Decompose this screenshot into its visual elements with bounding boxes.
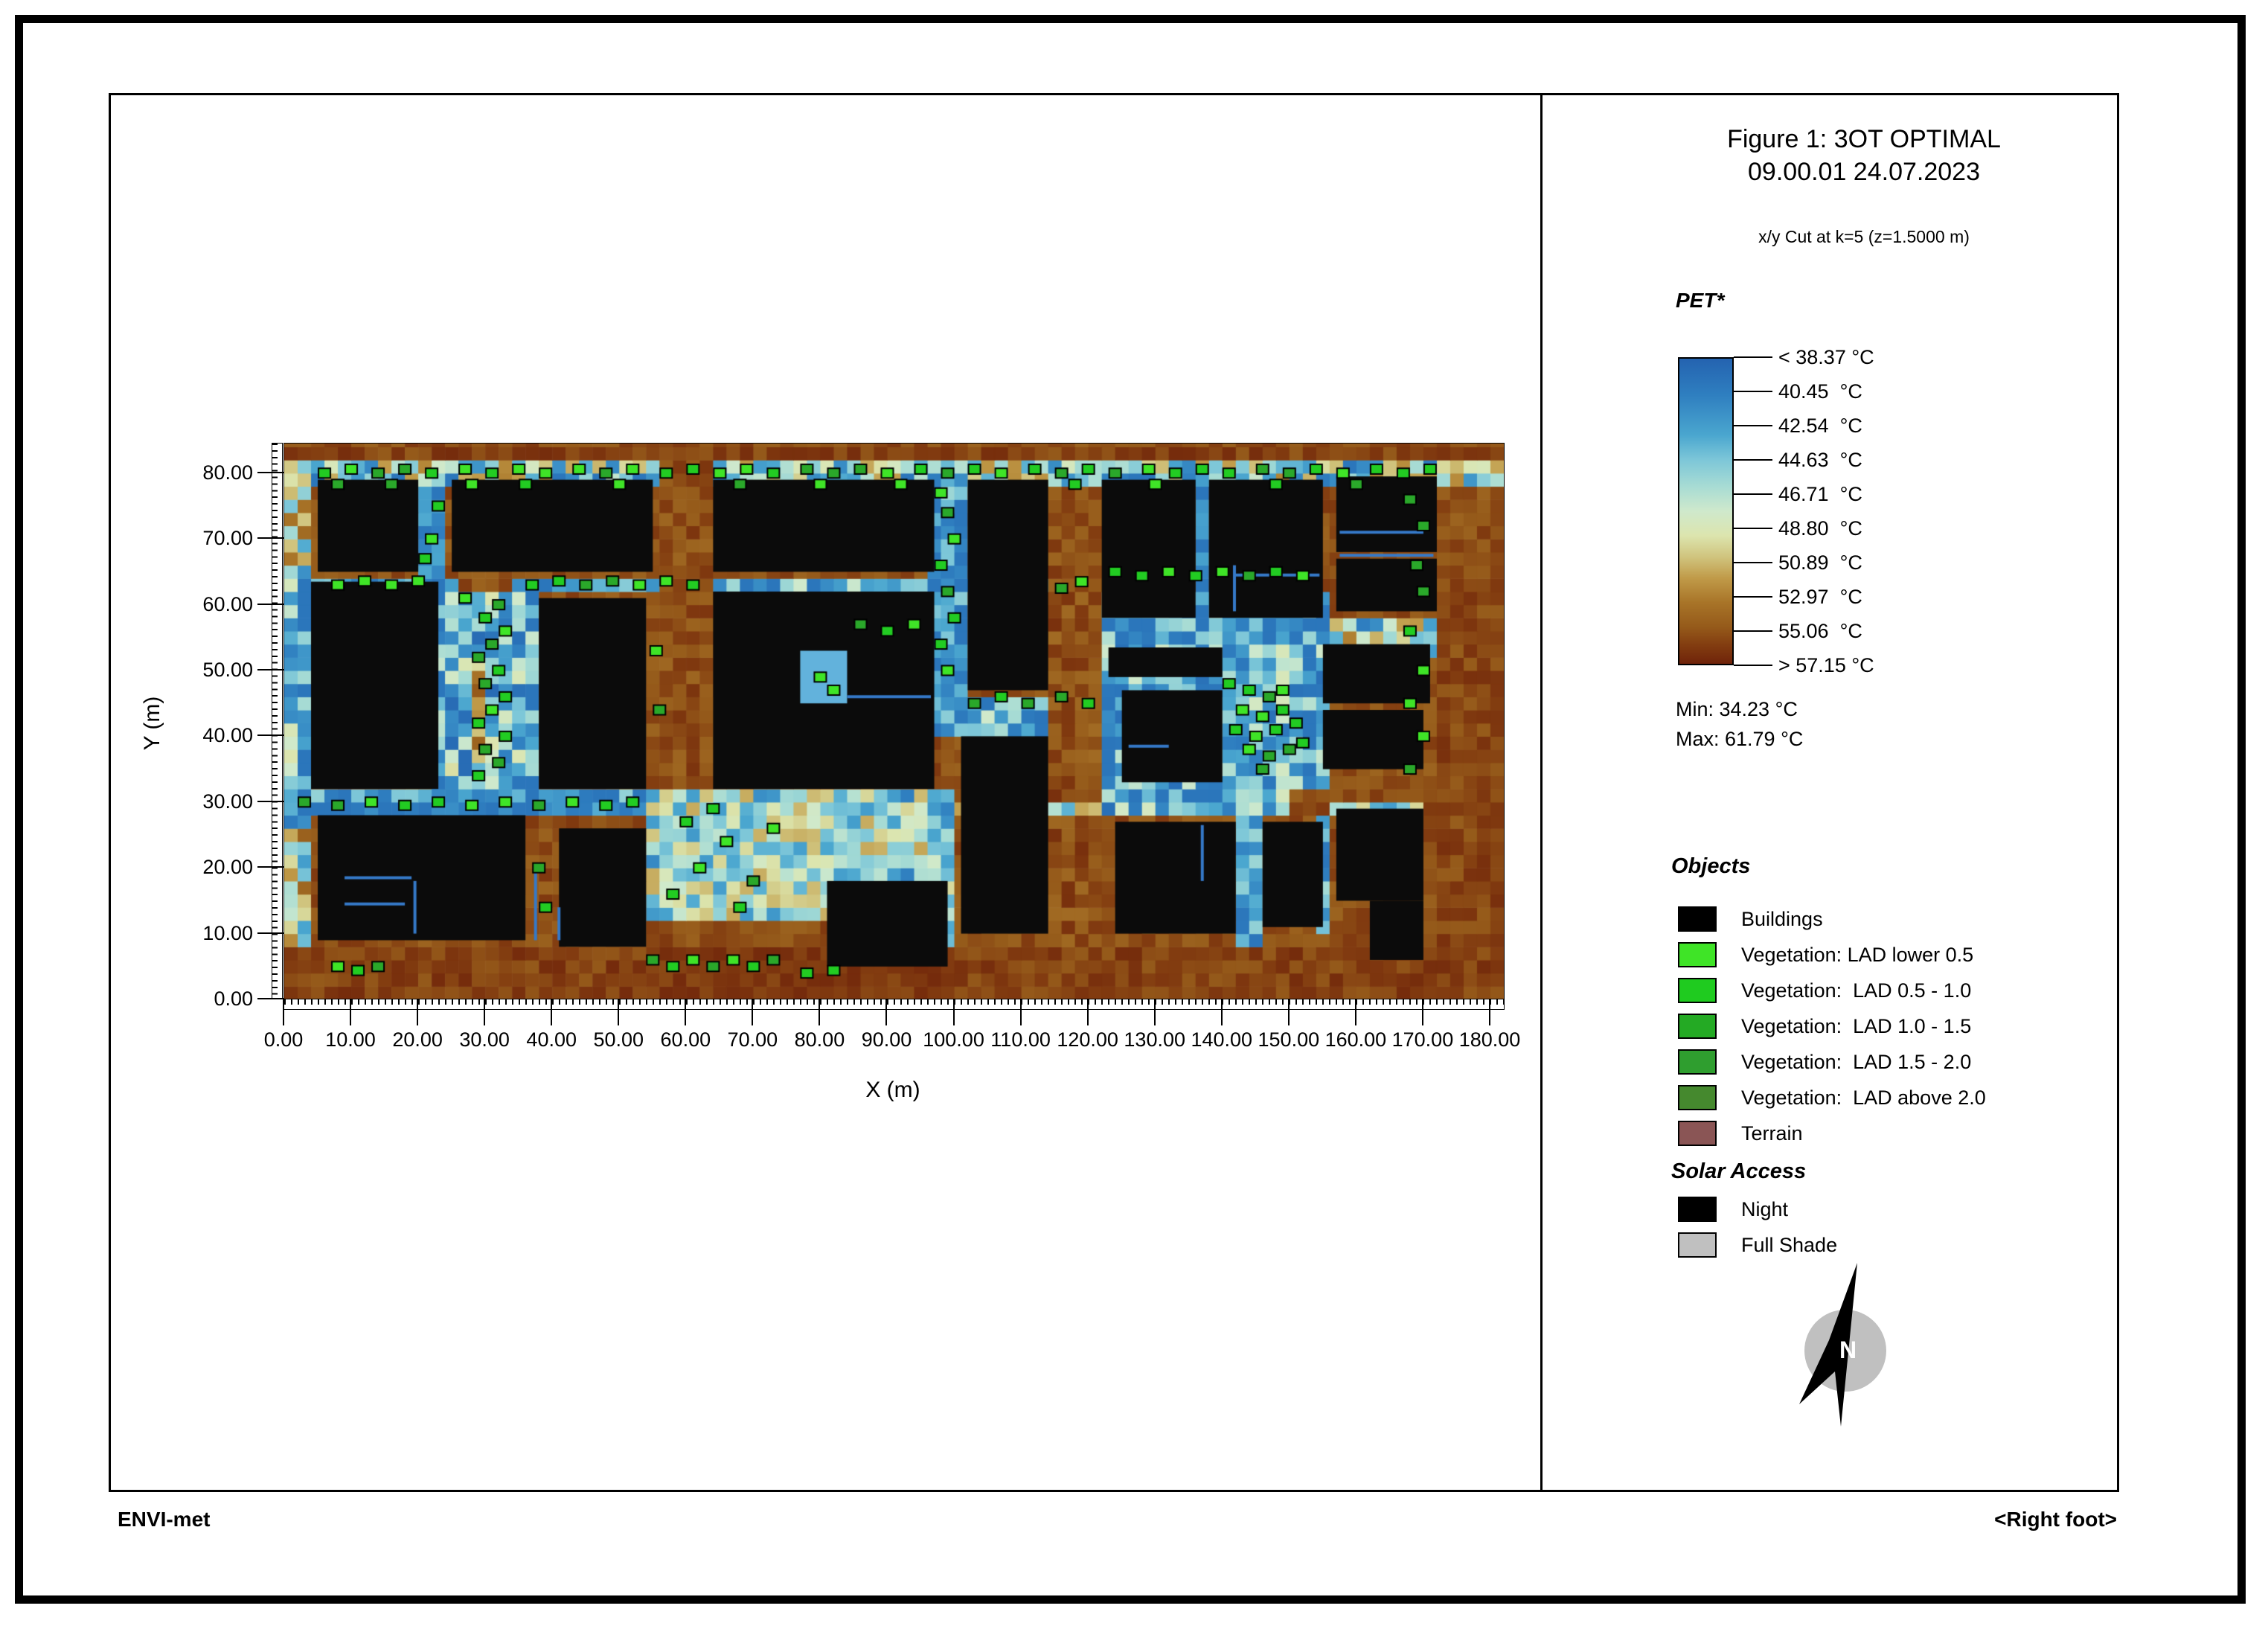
objects-item-label: Vegetation: LAD above 2.0 (1741, 1085, 1986, 1110)
x-tick-mark (1020, 999, 1022, 1025)
y-tick-label: 20.00 (146, 856, 253, 878)
x-tick-mark (350, 999, 351, 1025)
x-tick-label: 90.00 (850, 1028, 922, 1052)
footer-right: <Right foot> (1994, 1508, 2117, 1531)
cut-info: x/y Cut at k=5 (z=1.5000 m) (1607, 227, 2121, 247)
objects-item-label: Vegetation: LAD 0.5 - 1.0 (1741, 978, 1971, 1003)
colorbar-tick-mark (1734, 493, 1772, 495)
objects-item-label: Vegetation: LAD 1.0 - 1.5 (1741, 1014, 1971, 1039)
y-tick-mark (257, 537, 283, 539)
x-tick-label: 170.00 (1387, 1028, 1458, 1052)
y-tick-mark (257, 604, 283, 605)
colorbar-tick-label: 44.63 °C (1778, 449, 1862, 471)
figure-datetime: 09.00.01 24.07.2023 (1607, 156, 2121, 188)
colorbar-tick-mark (1734, 356, 1772, 358)
x-tick-label: 80.00 (784, 1028, 855, 1052)
y-tick-mark (257, 669, 283, 670)
objects-item-label: Terrain (1741, 1121, 1803, 1146)
y-tick-mark (257, 801, 283, 802)
x-tick-label: 160.00 (1320, 1028, 1391, 1052)
y-tick-label: 80.00 (146, 461, 253, 484)
x-tick-mark (618, 999, 619, 1025)
objects-item-label: Vegetation: LAD 1.5 - 2.0 (1741, 1049, 1971, 1075)
pet-min-value: Min: 34.23 °C (1676, 698, 1798, 721)
colorbar-tick-label: 40.45 °C (1778, 380, 1862, 403)
objects-item-swatch (1678, 1085, 1717, 1110)
x-tick-label: 20.00 (382, 1028, 453, 1052)
x-tick-label: 140.00 (1186, 1028, 1258, 1052)
x-tick-label: 50.00 (583, 1028, 654, 1052)
panel-divider (1540, 93, 1543, 1492)
colorbar-tick-label: 48.80 °C (1778, 517, 1862, 540)
x-tick-mark (484, 999, 485, 1025)
y-tick-label: 70.00 (146, 527, 253, 549)
envi-met-figure-page: 0.0010.0020.0030.0040.0050.0060.0070.008… (0, 0, 2268, 1626)
x-tick-mark (1087, 999, 1089, 1025)
y-tick-mark (257, 472, 283, 473)
objects-item-label: Vegetation: LAD lower 0.5 (1741, 942, 1973, 967)
x-tick-label: 30.00 (449, 1028, 520, 1052)
north-compass-icon: N (1786, 1261, 1905, 1433)
x-tick-mark (1355, 999, 1356, 1025)
pet-heatmap-canvas (283, 443, 1505, 1000)
x-tick-mark (953, 999, 955, 1025)
y-tick-label: 0.00 (146, 988, 253, 1010)
x-tick-mark (551, 999, 552, 1025)
colorbar-tick-label: 42.54 °C (1778, 414, 1862, 437)
x-axis-ruler (283, 999, 1505, 1010)
colorbar-tick-label: > 57.15 °C (1778, 654, 1874, 676)
y-axis-ruler (272, 443, 283, 999)
y-tick-mark (257, 998, 283, 999)
colorbar-tick-mark (1734, 391, 1772, 392)
y-tick-label: 60.00 (146, 593, 253, 615)
x-tick-mark (1422, 999, 1423, 1025)
solar-item-swatch (1678, 1197, 1717, 1222)
x-tick-label: 70.00 (717, 1028, 788, 1052)
x-axis-title: X (m) (833, 1078, 952, 1103)
solar-item-label: Night (1741, 1197, 1788, 1222)
objects-legend-title: Objects (1671, 854, 1750, 879)
x-tick-mark (417, 999, 418, 1025)
colorbar-tick-label: 52.97 °C (1778, 586, 1862, 608)
x-tick-label: 180.00 (1454, 1028, 1525, 1052)
pet-colorbar (1678, 357, 1734, 665)
x-tick-label: 110.00 (985, 1028, 1057, 1052)
x-tick-mark (1154, 999, 1156, 1025)
y-tick-mark (257, 866, 283, 868)
colorbar-tick-mark (1734, 425, 1772, 426)
x-tick-mark (283, 999, 284, 1025)
colorbar-tick-mark (1734, 665, 1772, 666)
x-tick-label: 150.00 (1253, 1028, 1324, 1052)
figure-title: Figure 1: 3OT OPTIMAL (1607, 123, 2121, 156)
x-tick-label: 130.00 (1119, 1028, 1191, 1052)
x-tick-label: 120.00 (1052, 1028, 1124, 1052)
x-tick-mark (1221, 999, 1223, 1025)
x-tick-label: 0.00 (248, 1028, 319, 1052)
x-tick-mark (1288, 999, 1290, 1025)
objects-item-swatch (1678, 1049, 1717, 1075)
objects-item-swatch (1678, 978, 1717, 1003)
x-tick-label: 10.00 (315, 1028, 386, 1052)
x-tick-mark (1489, 999, 1490, 1025)
colorbar-tick-mark (1734, 562, 1772, 563)
x-tick-label: 100.00 (918, 1028, 990, 1052)
colorbar-tick-label: 50.89 °C (1778, 551, 1862, 574)
colorbar-tick-label: 46.71 °C (1778, 483, 1862, 505)
colorbar-tick-mark (1734, 459, 1772, 461)
pet-max-value: Max: 61.79 °C (1676, 728, 1803, 751)
y-tick-label: 10.00 (146, 922, 253, 944)
x-tick-label: 60.00 (650, 1028, 721, 1052)
footer-left: ENVI-met (118, 1508, 210, 1531)
objects-item-swatch (1678, 1014, 1717, 1039)
colorbar-tick-label: 55.06 °C (1778, 620, 1862, 642)
solar-legend-title: Solar Access (1671, 1159, 1806, 1184)
objects-item-swatch (1678, 942, 1717, 967)
solar-item-label: Full Shade (1741, 1232, 1837, 1258)
y-axis-title: Y (m) (140, 649, 165, 798)
solar-item-swatch (1678, 1232, 1717, 1258)
colorbar-tick-mark (1734, 596, 1772, 598)
colorbar-title: PET* (1676, 289, 1724, 313)
x-tick-mark (752, 999, 753, 1025)
objects-item-label: Buildings (1741, 906, 1823, 932)
x-tick-mark (685, 999, 686, 1025)
svg-text:N: N (1839, 1337, 1857, 1363)
colorbar-tick-mark (1734, 630, 1772, 632)
figure-header: Figure 1: 3OT OPTIMAL 09.00.01 24.07.202… (1607, 123, 2121, 247)
colorbar-tick-label: < 38.37 °C (1778, 346, 1874, 368)
objects-item-swatch (1678, 906, 1717, 932)
y-tick-mark (257, 932, 283, 934)
colorbar-tick-mark (1734, 528, 1772, 529)
y-tick-mark (257, 734, 283, 736)
x-tick-mark (819, 999, 820, 1025)
x-tick-mark (885, 999, 887, 1025)
x-tick-label: 40.00 (516, 1028, 587, 1052)
objects-item-swatch (1678, 1121, 1717, 1146)
